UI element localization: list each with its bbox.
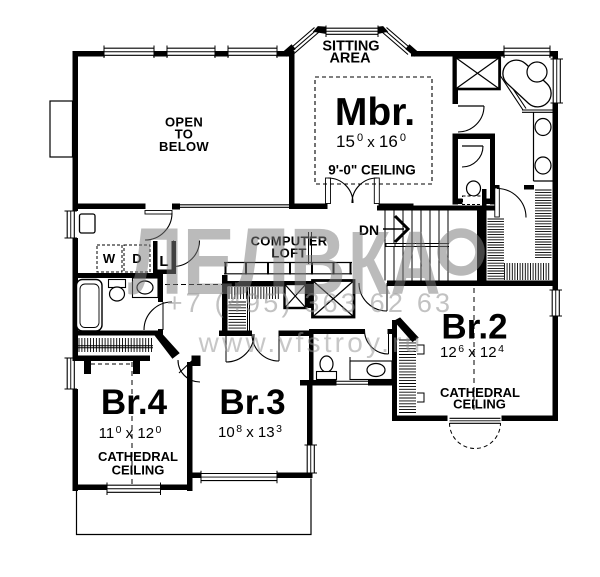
svg-text:Br.4: Br.4 xyxy=(101,383,168,422)
svg-text:Br.3: Br.3 xyxy=(219,383,285,422)
svg-text:9'-0" CEILING: 9'-0" CEILING xyxy=(328,163,416,178)
svg-text:108 x 133: 108 x 133 xyxy=(218,423,282,441)
svg-text:110 x 120: 110 x 120 xyxy=(99,424,162,442)
svg-text:126 x 124: 126 x 124 xyxy=(440,343,504,361)
svg-text:www.vfstroy.ru: www.vfstroy.ru xyxy=(198,327,424,358)
svg-text:AREA: AREA xyxy=(329,51,371,67)
svg-text:W: W xyxy=(103,251,116,266)
svg-text:150 x 160: 150 x 160 xyxy=(336,132,406,151)
svg-text:Mbr.: Mbr. xyxy=(335,91,415,134)
svg-text:BELOW: BELOW xyxy=(159,139,209,154)
svg-text:КА: КА xyxy=(348,213,440,314)
svg-text:CEILING: CEILING xyxy=(453,397,506,412)
svg-text:ЛЕЛВ: ЛЕЛВ xyxy=(128,209,346,315)
svg-text:CEILING: CEILING xyxy=(112,463,165,478)
